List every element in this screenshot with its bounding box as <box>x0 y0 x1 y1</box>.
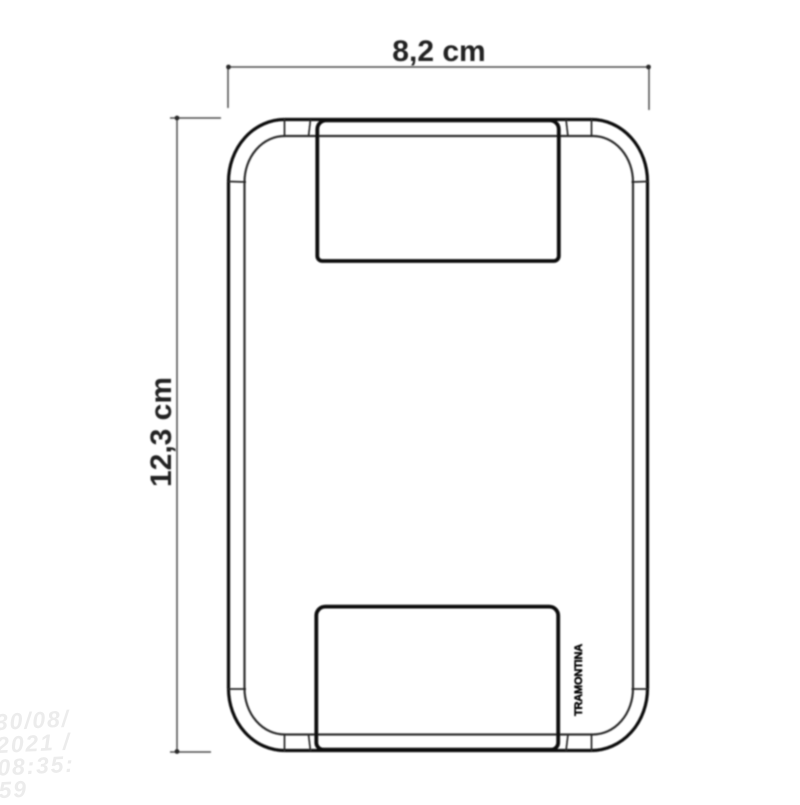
svg-text:59: 59 <box>0 776 28 800</box>
svg-text:12,3 cm: 12,3 cm <box>145 377 178 487</box>
svg-text:TRAMONTINA: TRAMONTINA <box>573 644 585 716</box>
svg-text:8,2 cm: 8,2 cm <box>392 35 485 68</box>
